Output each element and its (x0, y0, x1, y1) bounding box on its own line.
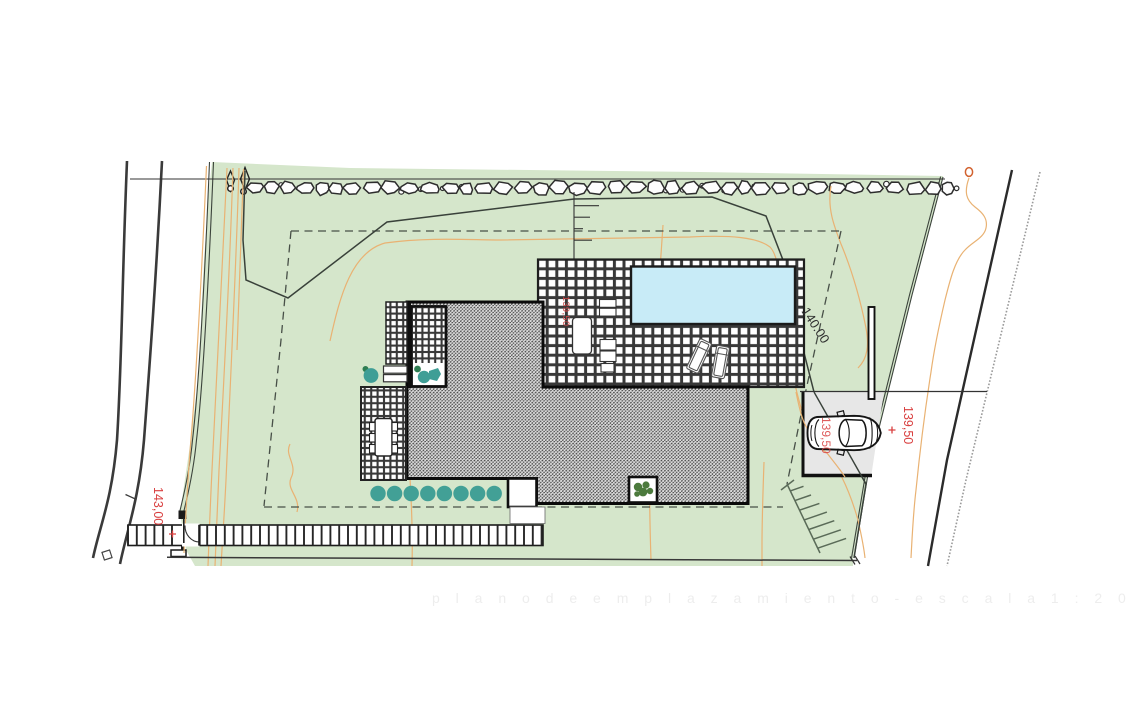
svg-text:143,00: 143,00 (151, 487, 165, 525)
svg-text:139,50: 139,50 (901, 406, 915, 444)
svg-text:139,50: 139,50 (561, 296, 571, 327)
svg-text:p l a n o d e e m p l a z a: p l a n o d e e m p l a z a m i e n t o … (432, 590, 1130, 606)
svg-text:139,50: 139,50 (819, 417, 833, 454)
